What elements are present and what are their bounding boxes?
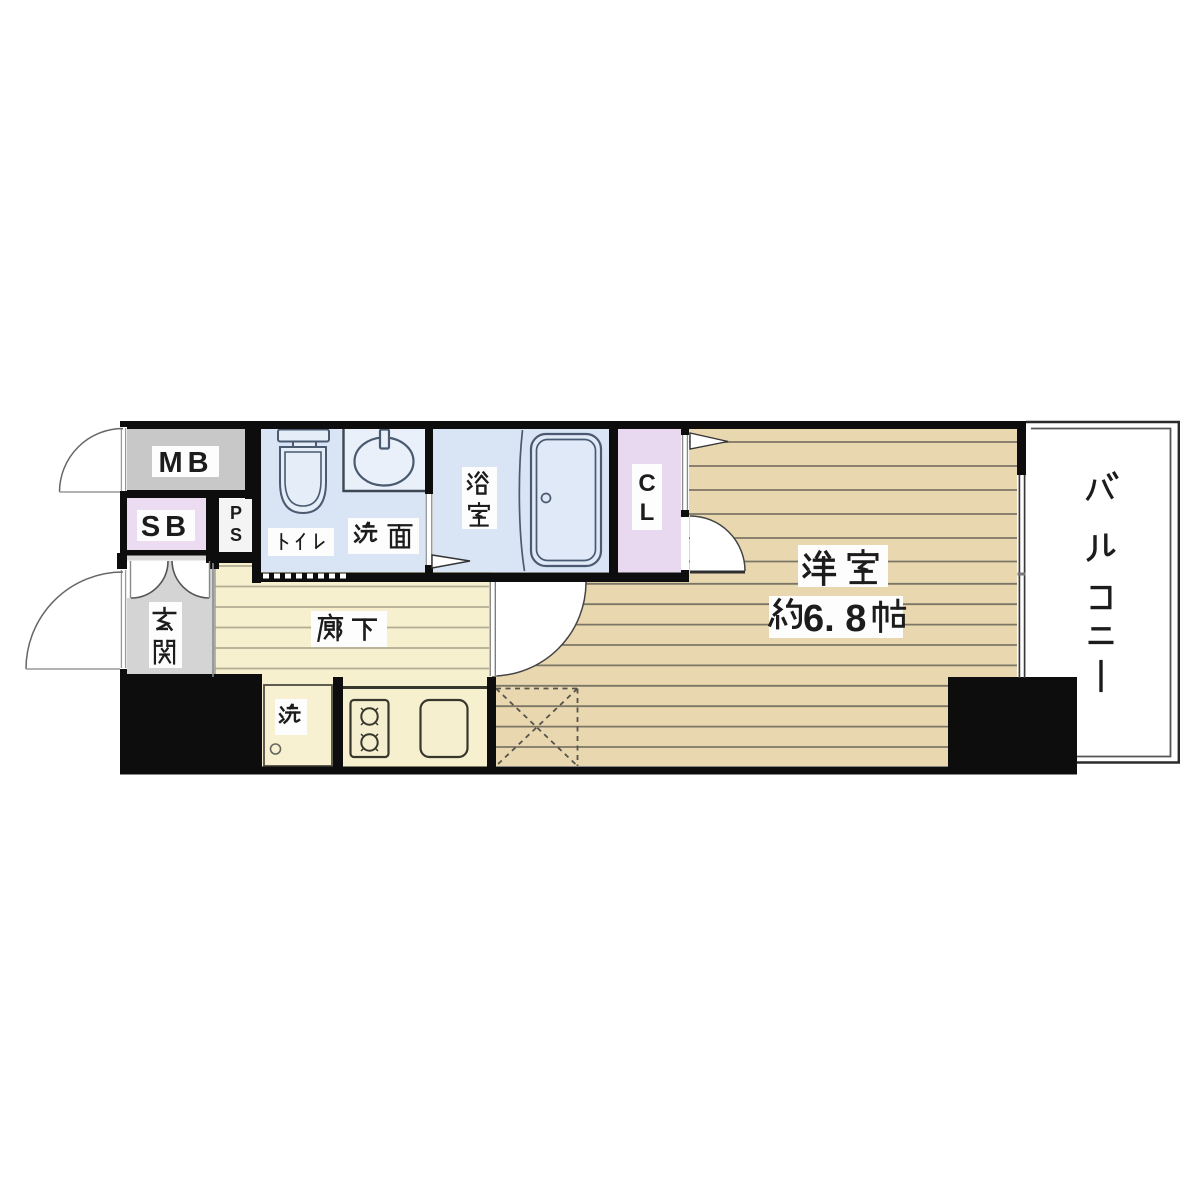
svg-text:P: P bbox=[230, 503, 242, 523]
svg-text:6. 8: 6. 8 bbox=[803, 598, 866, 640]
svg-text:C: C bbox=[638, 470, 655, 497]
svg-text:MB: MB bbox=[158, 447, 213, 479]
svg-text:S: S bbox=[230, 525, 242, 545]
svg-text:SB: SB bbox=[141, 511, 191, 543]
svg-text:L: L bbox=[640, 499, 655, 526]
